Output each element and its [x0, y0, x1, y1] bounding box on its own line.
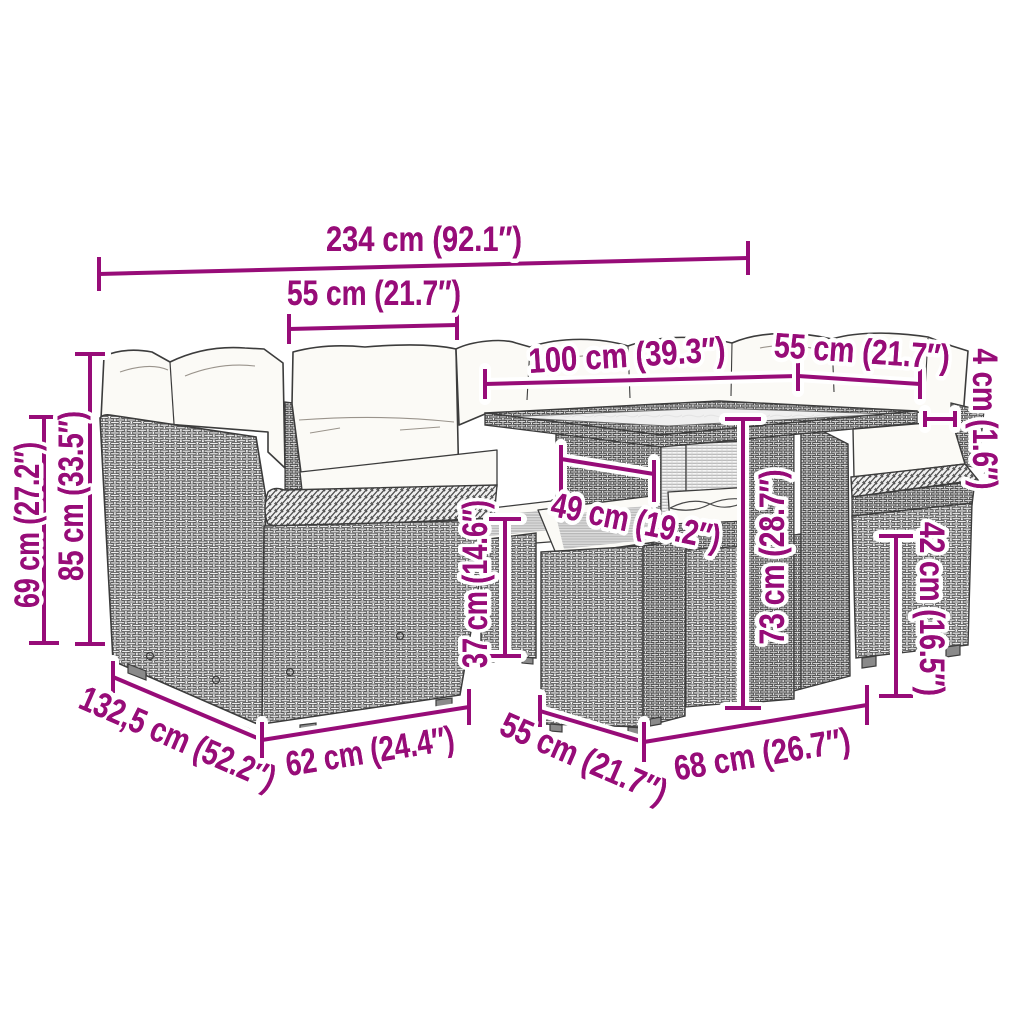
svg-text:69 cm (27.2″): 69 cm (27.2″): [8, 442, 47, 608]
svg-text:55 cm (21.7″): 55 cm (21.7″): [287, 274, 461, 313]
svg-text:37 cm (14.6″): 37 cm (14.6″): [456, 500, 495, 668]
svg-text:85 cm (33.5″): 85 cm (33.5″): [52, 411, 91, 581]
svg-text:4 cm (1.6″): 4 cm (1.6″): [965, 349, 1004, 490]
svg-text:42 cm (16.5″): 42 cm (16.5″): [912, 522, 951, 696]
svg-text:234 cm (92.1″): 234 cm (92.1″): [326, 220, 522, 259]
svg-text:73 cm (28.7″): 73 cm (28.7″): [753, 470, 792, 645]
